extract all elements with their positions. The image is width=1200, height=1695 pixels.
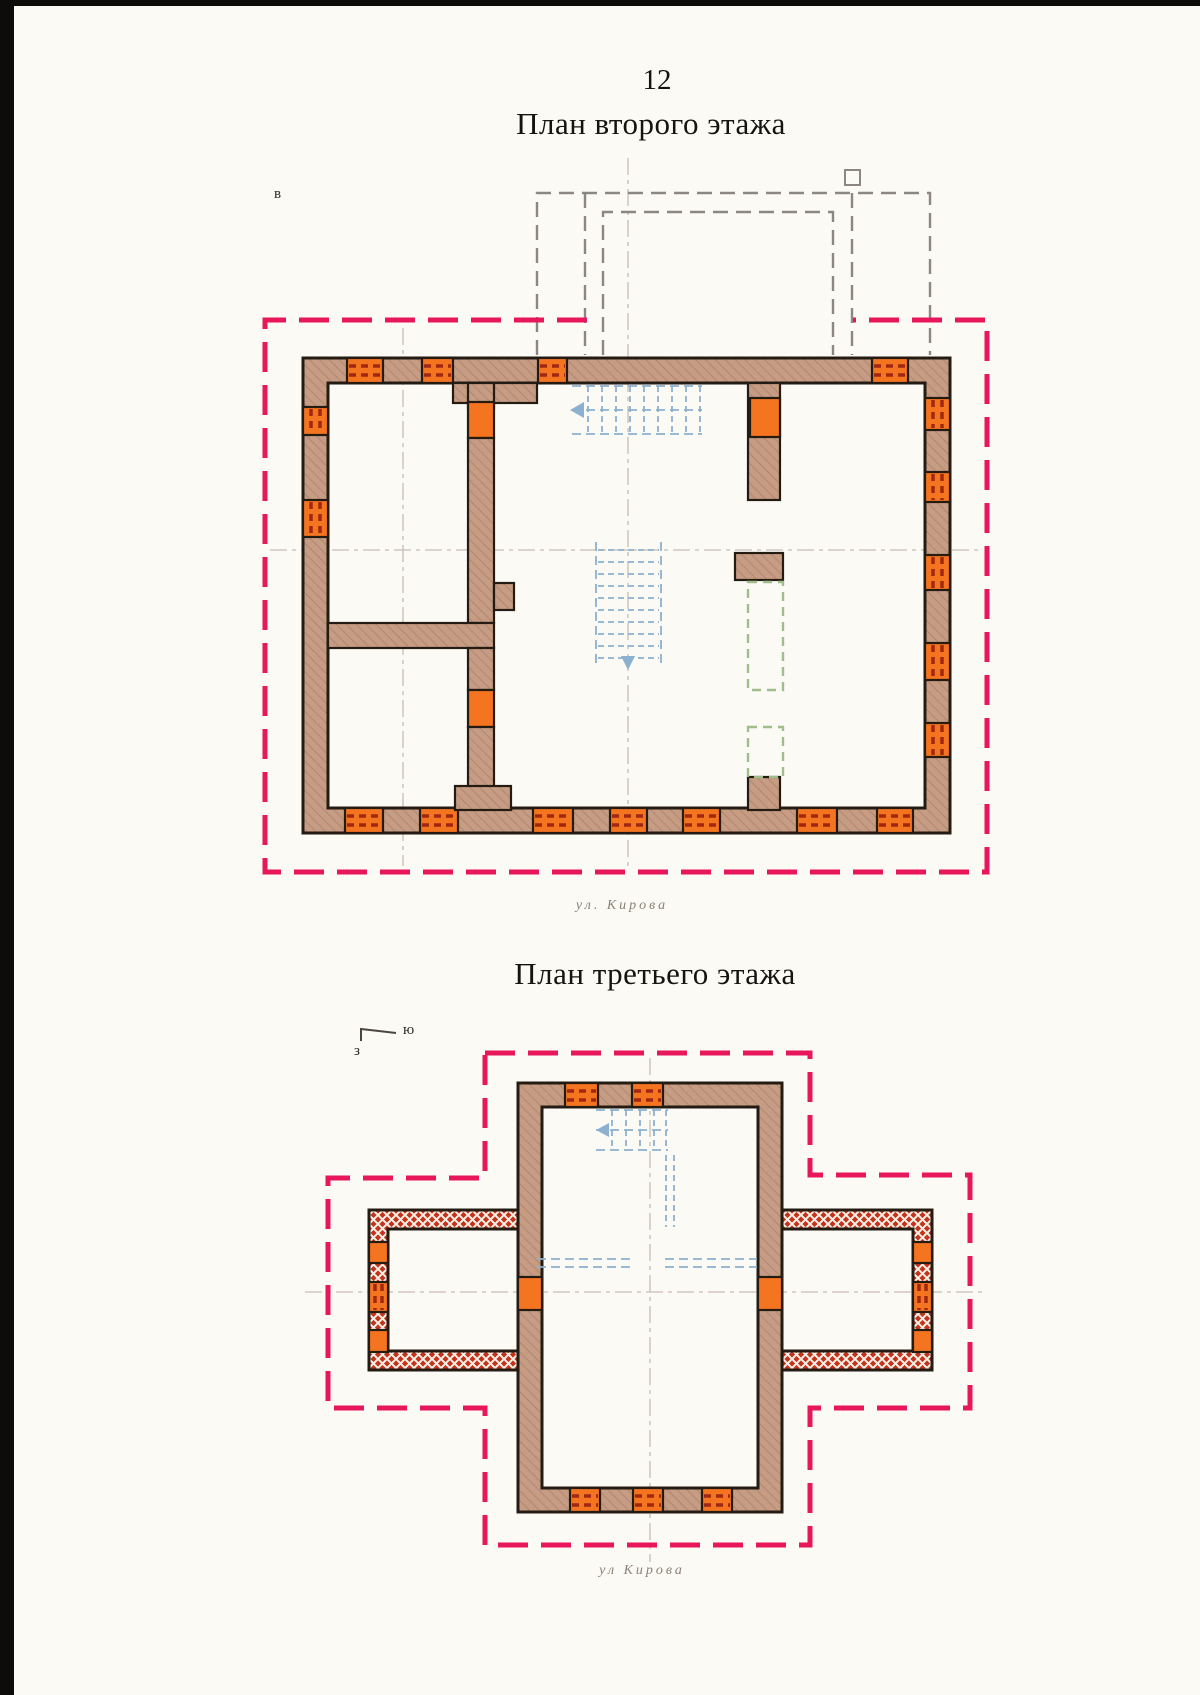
plan1-site-boundary [265, 320, 987, 872]
plan1-upper-stairs [570, 386, 702, 434]
scan-edge-left-bar [0, 0, 14, 1695]
plan1-street-label: ул. Кирова [576, 898, 668, 914]
plan1-axis-lines [270, 158, 982, 866]
plan2-site-boundary [328, 1053, 970, 1545]
plan1-light-partitions [748, 582, 783, 777]
page-number: 12 [643, 64, 672, 97]
plan1-stairs-arrow [621, 656, 635, 670]
plan1-interior-door [468, 402, 494, 438]
plan1-interior-door [750, 398, 780, 437]
plan2-stairs [596, 1110, 674, 1227]
plan2-floor-layout-dashes [537, 1259, 757, 1267]
plan2-axis-lines [305, 1058, 985, 1562]
plan1-interior-walls [328, 383, 783, 810]
plan2-wing-doorway [518, 1277, 542, 1310]
plan2-stairs-flight-line [666, 1155, 674, 1227]
plan1-title: План второго этажа [516, 106, 786, 142]
plan2-stairs-arrow [596, 1123, 609, 1137]
plan1-drawing [240, 150, 1010, 930]
plan1-windows [303, 358, 950, 833]
plan1-stairs-arrow [570, 402, 584, 418]
plan1-interior-door [468, 690, 494, 727]
plan2-street-label: ул Кирова [599, 1563, 685, 1579]
scanned-document-page: 12 План второго этажа в [0, 0, 1200, 1695]
plan2-compass-mark [361, 1029, 396, 1041]
plan2-title: План третьего этажа [514, 956, 795, 992]
scan-edge-top-line [0, 0, 1200, 6]
plan2-right-wing-walls [782, 1210, 932, 1370]
plan1-exterior-walls [303, 358, 950, 833]
plan2-wing-doorway [758, 1277, 782, 1310]
plan1-roof-corner-marker [845, 170, 860, 185]
plan2-drawing [290, 1000, 1000, 1600]
plan2-left-wing-walls [369, 1210, 518, 1370]
plan1-roof-outline [537, 170, 930, 355]
